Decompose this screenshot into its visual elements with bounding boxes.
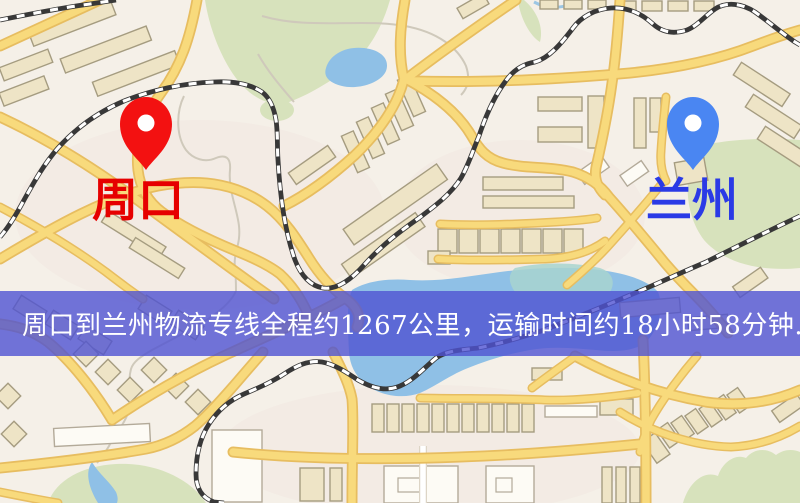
route-info-banner: 周口到兰州物流专线全程约1267公里，运输时间约18小时58分钟. bbox=[0, 291, 800, 356]
origin-label: 周口 bbox=[92, 177, 184, 223]
map-graphics bbox=[0, 0, 800, 503]
route-info-text: 周口到兰州物流专线全程约1267公里，运输时间约18小时58分钟. bbox=[0, 305, 800, 342]
destination-label: 兰州 bbox=[646, 177, 738, 223]
map-canvas[interactable]: 周口 兰州 周口到兰州物流专线全程约1267公里，运输时间约18小时58分钟. bbox=[0, 0, 800, 503]
